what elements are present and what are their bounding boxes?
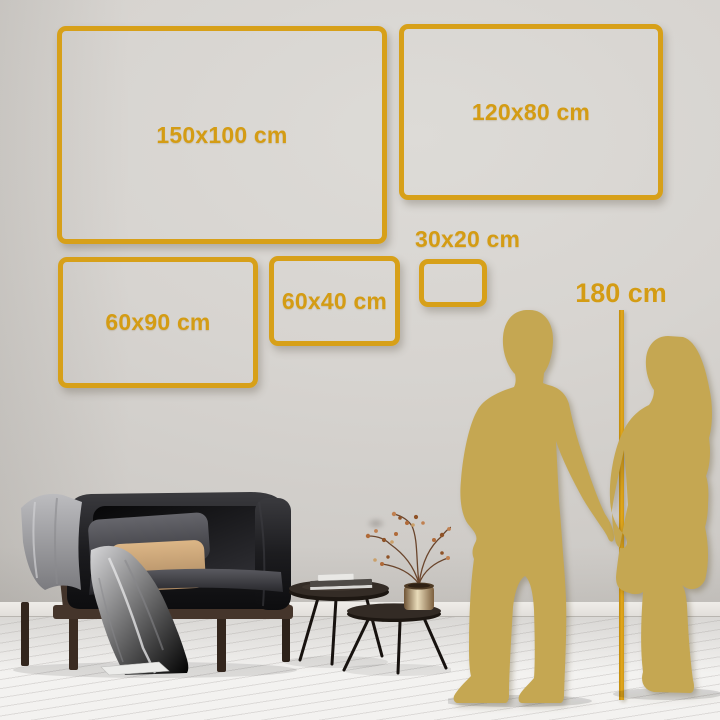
large-table [289,580,389,664]
sofa [5,478,305,678]
brass-vase [404,583,434,611]
size-frame-60x40-label: 60x40 cm [282,288,387,315]
coffee-tables [276,496,451,676]
size-frame-60x90: 60x90 cm [58,257,258,388]
man-silhouette [448,302,618,708]
books-stack [310,573,372,590]
size-frame-150x100-label: 150x100 cm [156,122,287,149]
size-frame-60x90-label: 60x90 cm [105,309,210,336]
size-frame-150x100: 150x100 cm [57,26,387,244]
size-frame-120x80-label: 120x80 cm [472,99,590,126]
size-frame-60x40: 60x40 cm [269,256,400,346]
woman-silhouette [598,330,720,702]
size-frame-120x80: 120x80 cm [399,24,663,200]
plant-branches [368,514,451,584]
size-frame-30x20-label: 30x20 cm [415,226,545,253]
size-frame-30x20 [419,259,487,307]
wall-art-size-guide-scene: 150x100 cm 120x80 cm 60x90 cm 60x40 cm 3… [0,0,720,720]
sofa-throw-blanket [21,494,82,590]
